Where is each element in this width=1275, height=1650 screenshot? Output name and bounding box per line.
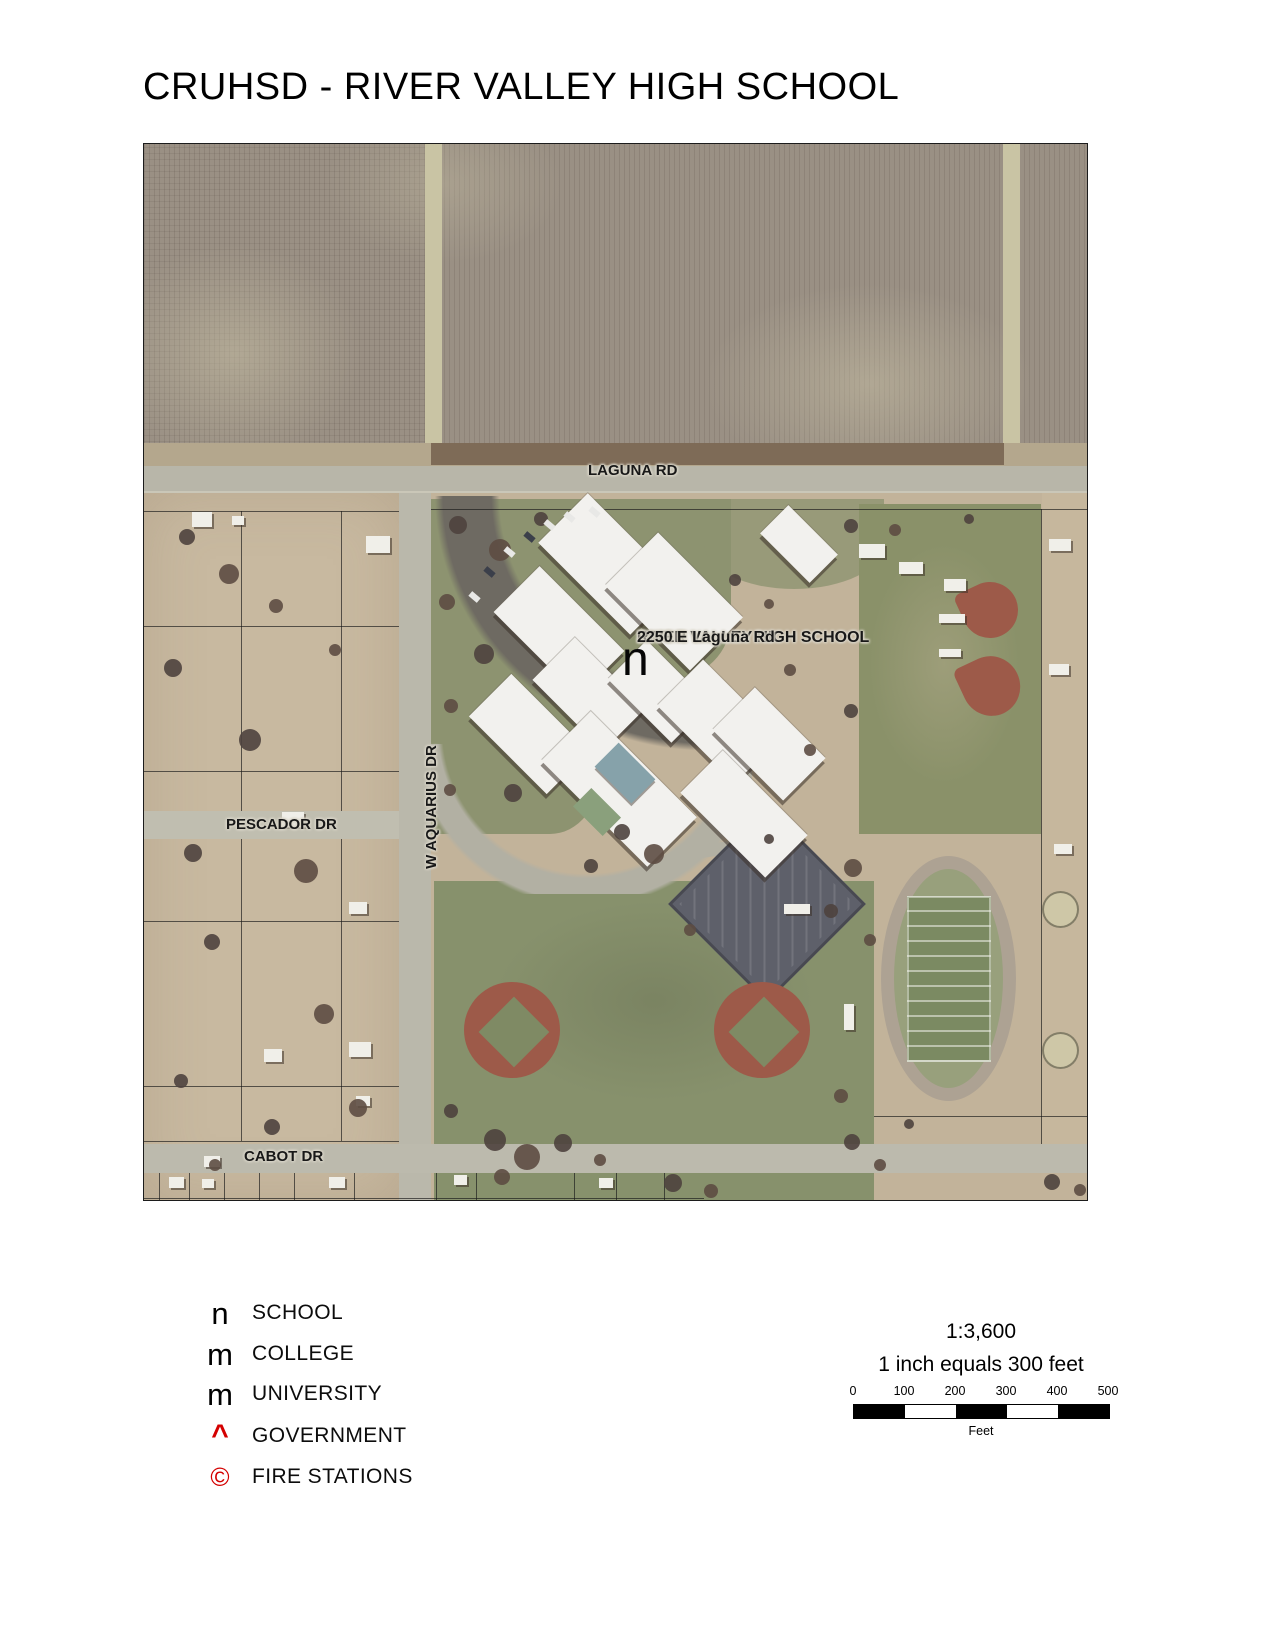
house [1049,664,1069,675]
road-label-aquarius: W AQUARIUS DR [423,707,441,907]
tree [704,1184,718,1198]
tree [474,644,494,664]
tree [1044,1174,1060,1190]
tree [179,529,195,545]
parcel-line [159,1173,160,1200]
car [523,531,535,543]
school-marker-icon: n [622,636,649,684]
tree [874,1159,886,1171]
tree [444,1104,458,1118]
road-label-cabot: CABOT DR [244,1148,323,1165]
house [454,1175,467,1185]
legend-item-college: m COLLEGE [198,1335,354,1373]
house [899,562,923,574]
scalebar-segments [853,1404,1110,1419]
legend-item-fire-stations: © FIRE STATIONS [198,1458,413,1496]
parcel-line [476,1173,477,1200]
map-decorations [144,144,1087,1200]
road-label-laguna: LAGUNA RD [588,462,677,479]
house [169,1177,184,1188]
tree [209,1159,221,1171]
tree [554,1134,572,1152]
tree [449,516,467,534]
house [1049,539,1071,551]
tree [844,519,858,533]
tree [184,844,202,862]
school-building [760,505,838,583]
house [859,544,885,558]
scalebar-unit: Feet [853,1424,1109,1438]
house [264,1049,282,1062]
scale-equivalence: 1 inch equals 300 feet [803,1353,1159,1377]
parcel-line [189,1173,190,1200]
car [483,566,495,578]
parcel-line [574,1173,575,1200]
legend-item-government: ^ GOVERNMENT [198,1417,407,1455]
tree [784,664,796,676]
house [599,1178,613,1188]
tree [239,729,261,751]
college-marker-icon: m [198,1339,242,1370]
tree [1074,1184,1086,1196]
parcel-line [436,1173,437,1200]
fire-station-marker-icon: © [198,1464,242,1490]
tree [504,784,522,802]
tree [174,1074,188,1088]
tree [844,704,858,718]
house [939,614,965,623]
parcel-line [224,1173,225,1200]
page-title: CRUHSD - RIVER VALLEY HIGH SCHOOL [143,66,899,109]
house [939,649,961,657]
tree [264,1119,280,1135]
house [192,512,212,527]
tree [314,1004,334,1024]
tree [804,744,816,756]
school-callout-address: 2250 E Laguna Rd [637,628,775,648]
tree [824,904,838,918]
tree [644,844,664,864]
tree [329,644,341,656]
parcel-line [144,511,399,512]
government-marker-icon: ^ [198,1421,242,1451]
scale-ratio: 1:3,600 [853,1320,1109,1344]
map-viewport: LAGUNA RD PESCADOR DR CABOT DR W AQUARIU… [143,143,1088,1201]
tree [484,1129,506,1151]
parcel-line [294,1173,295,1200]
parcel-line [144,921,399,922]
road-label-pescador: PESCADOR DR [226,816,337,833]
parcel-line [144,1198,704,1199]
tree [444,699,458,713]
tree [844,859,862,877]
parcel-line [616,1173,617,1200]
legend-item-school: n SCHOOL [198,1294,343,1332]
page: CRUHSD - RIVER VALLEY HIGH SCHOOL [0,0,1275,1650]
parcel-line [241,839,242,1141]
house [349,1042,371,1057]
tree [514,1144,540,1170]
tree [844,1134,860,1150]
car [468,591,480,603]
parcel-line [144,626,399,627]
university-marker-icon: m [198,1379,242,1410]
tree [294,859,318,883]
house [784,904,810,914]
parcel-line [241,511,242,811]
legend-item-university: m UNIVERSITY [198,1375,382,1413]
scalebar-tick: 300 [996,1384,1017,1398]
tree [444,784,456,796]
tree [889,524,901,536]
tree [614,824,630,840]
tree [584,859,598,873]
tree [269,599,283,613]
house [349,902,367,914]
school-marker-icon: n [198,1298,242,1329]
scalebar: 0 100 200 300 400 500 Feet [853,1384,1109,1444]
house [202,1179,214,1188]
tree [729,574,741,586]
tree [664,1174,682,1192]
parcel-line [144,1141,399,1142]
tree [864,934,876,946]
tree [219,564,239,584]
tree [764,834,774,844]
tree [684,924,696,936]
scalebar-tick: 0 [850,1384,857,1398]
scalebar-tick: 200 [945,1384,966,1398]
scalebar-tick: 400 [1047,1384,1068,1398]
tree [494,1169,510,1185]
house [329,1177,345,1188]
scalebar-tick: 100 [894,1384,915,1398]
house [1054,844,1072,854]
tree [964,514,974,524]
parcel-line [341,839,342,1141]
scalebar-tick: 500 [1098,1384,1119,1398]
house [366,536,390,553]
parcel-line [259,1173,260,1200]
tree [164,659,182,677]
parcel-line [144,771,399,772]
tree [349,1099,367,1117]
tree [764,599,774,609]
tree [594,1154,606,1166]
parcel-line [431,509,1087,510]
house [844,1004,854,1030]
parcel-line [354,1173,355,1200]
parcel-line [874,1116,1087,1117]
parcel-line [1041,509,1042,1144]
parcel-line [341,511,342,811]
house [944,579,966,591]
tree [204,934,220,950]
house [232,516,244,525]
tree [439,594,455,610]
tree [904,1119,914,1129]
tree [834,1089,848,1103]
